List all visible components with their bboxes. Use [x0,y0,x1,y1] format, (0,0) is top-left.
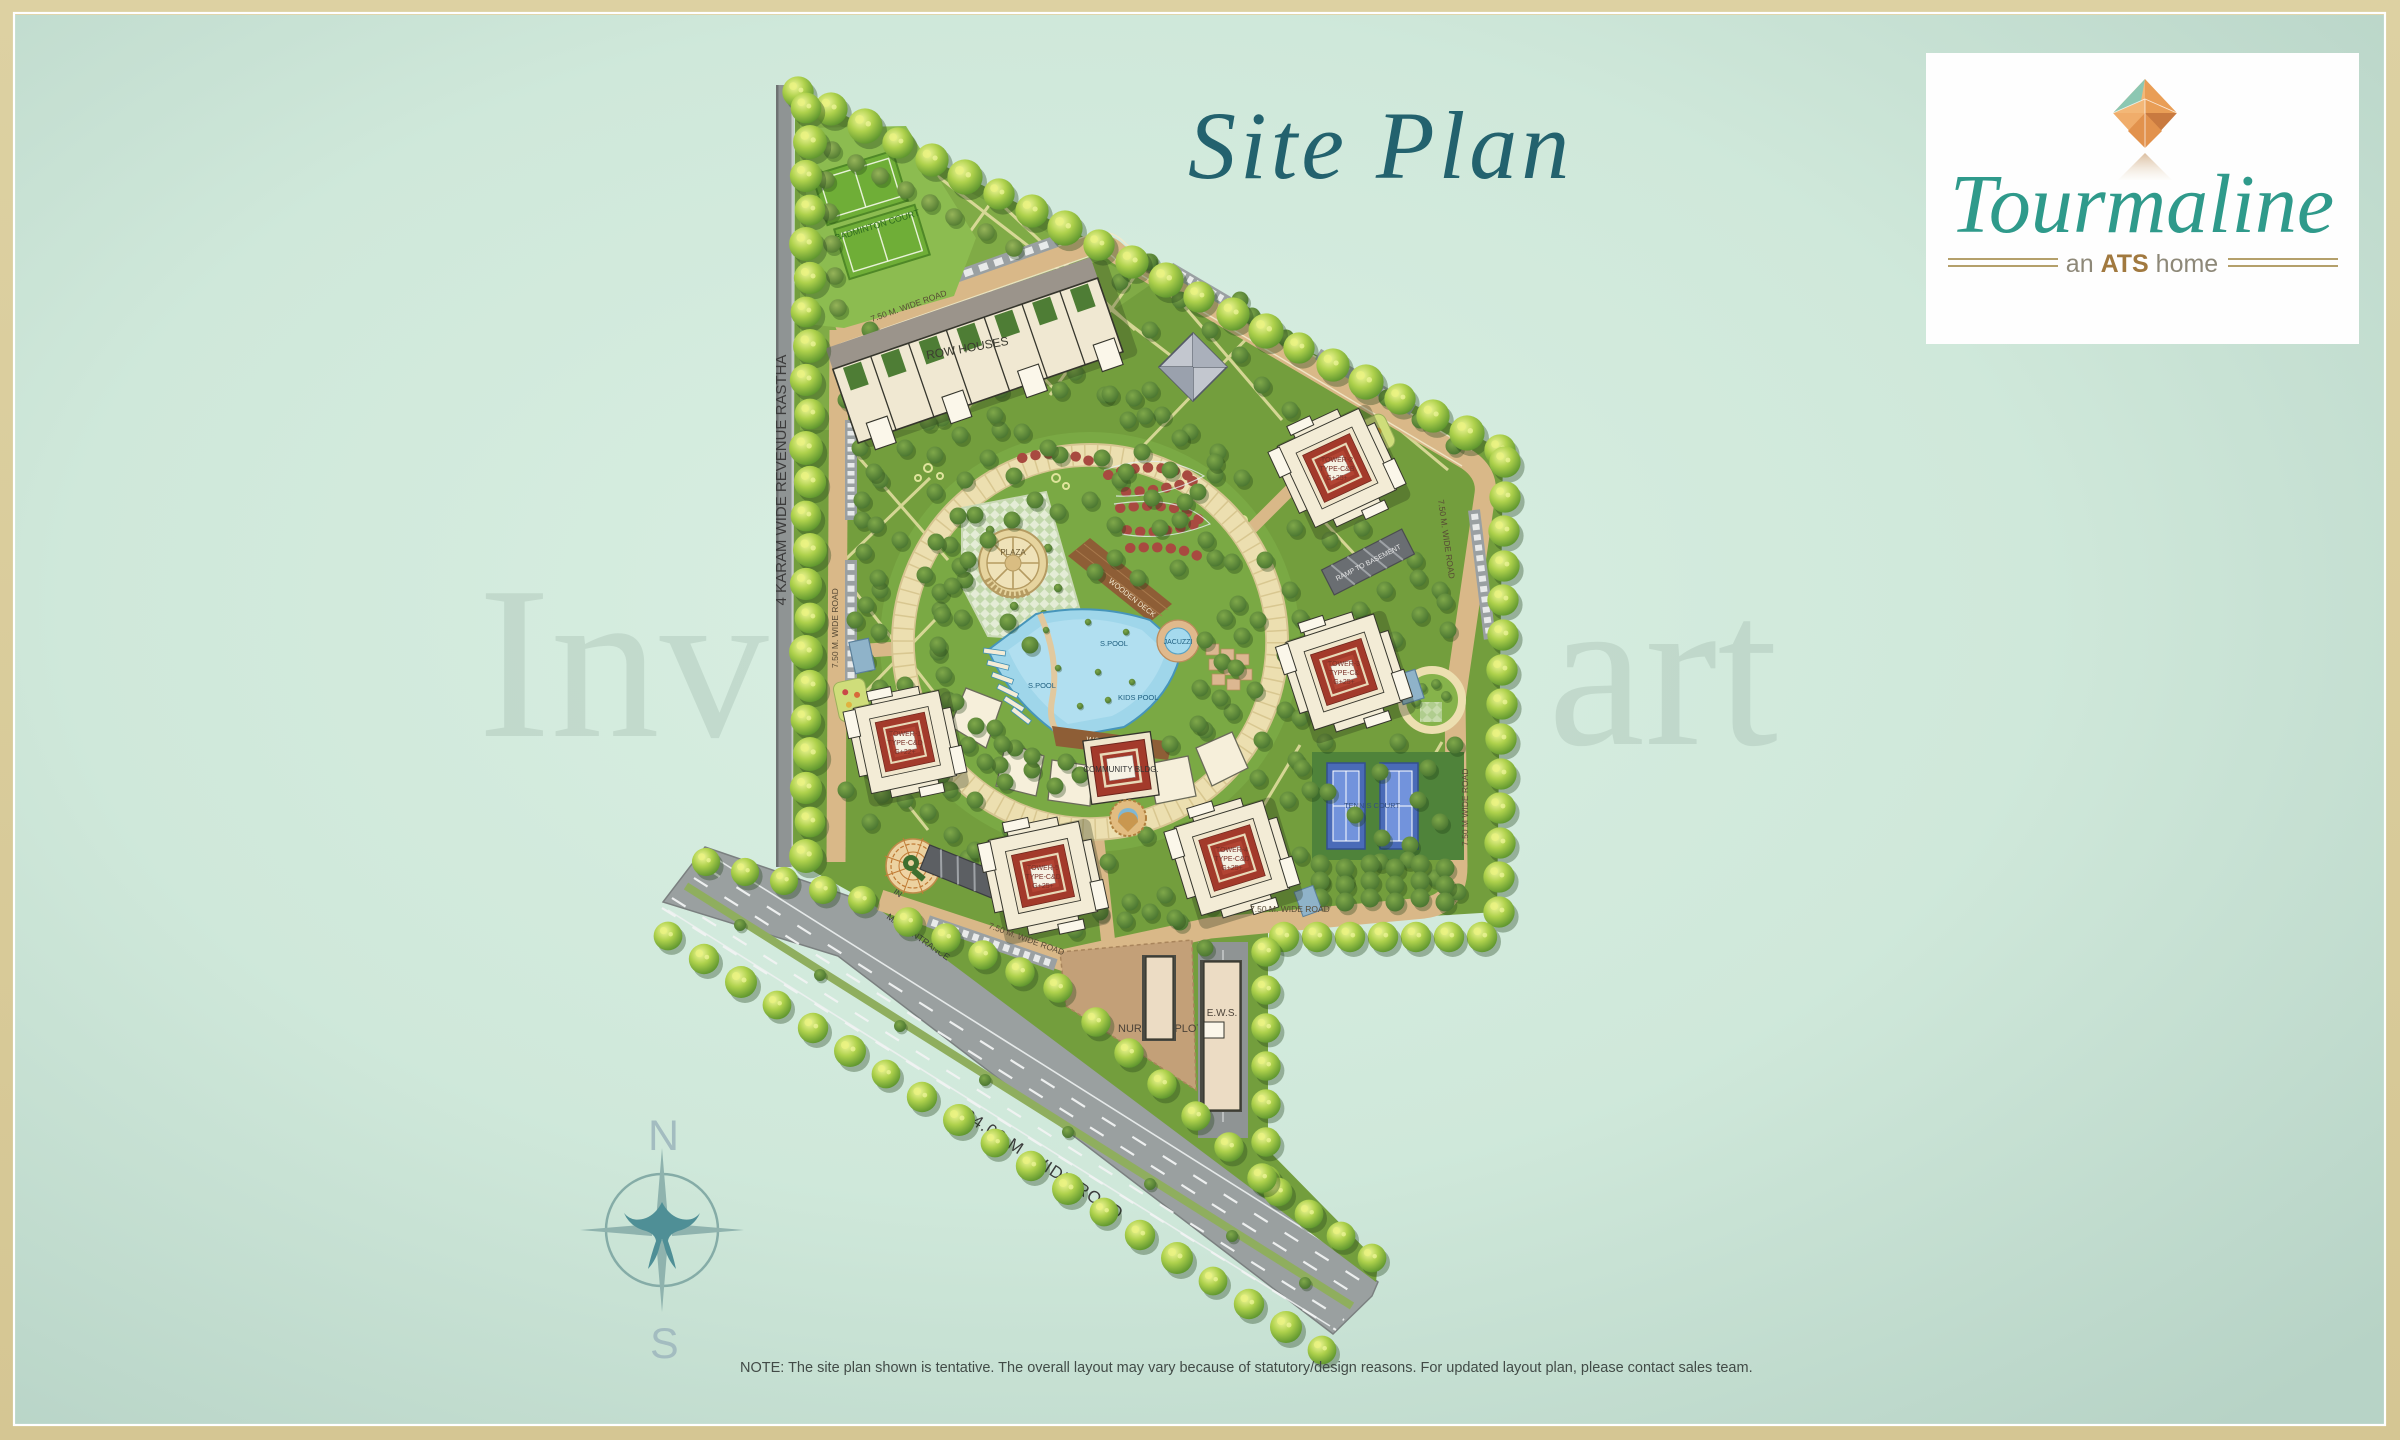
svg-text:TYPE-C&D: TYPE-C&D [887,740,922,747]
svg-text:TYPE-C&: TYPE-C& [1329,670,1360,677]
svg-text:G+25+: G+25+ [1032,883,1053,890]
svg-text:an ATS home: an ATS home [2066,250,2218,278]
svg-text:NOTE: The site plan shown is t: NOTE: The site plan shown is tentative. … [740,1360,1753,1376]
svg-text:N: N [648,1112,679,1160]
svg-text:KIDS POOL: KIDS POOL [1118,693,1158,702]
svg-text:JACUZZI: JACUZZI [1164,639,1193,646]
svg-text:COMMUNITY BLDG.: COMMUNITY BLDG. [1083,765,1158,774]
svg-text:G+25+: G+25+ [1221,865,1242,872]
svg-text:Site Plan: Site Plan [1188,92,1573,199]
svg-text:TOWER-4: TOWER-4 [1216,847,1248,854]
svg-text:7.50 M. WIDE ROAD: 7.50 M. WIDE ROAD [830,588,840,668]
svg-text:TYPE-C&B: TYPE-C&B [1319,466,1354,473]
svg-text:TOWER-5: TOWER-5 [1027,865,1059,872]
svg-text:Tourmaline: Tourmaline [1950,158,2334,251]
svg-text:PLAZA: PLAZA [1000,548,1026,557]
svg-text:Inv: Inv [478,543,769,784]
svg-text:G+25+: G+25+ [1333,679,1354,686]
svg-text:7.50 M WIDE ROAD: 7.50 M WIDE ROAD [1460,769,1470,846]
svg-text:TOWER-3: TOWER-3 [1328,661,1360,668]
svg-text:TOWER-2: TOWER-2 [1321,457,1353,464]
svg-text:TYPE-C&D: TYPE-C&D [1214,856,1249,863]
svg-text:TOWER-1: TOWER-1 [889,731,921,738]
svg-text:S.POOL: S.POOL [1100,639,1128,648]
svg-text:4 KARAM WIDE REVENUE RASTHA: 4 KARAM WIDE REVENUE RASTHA [773,355,790,606]
svg-text:7.50 M. WIDE ROAD: 7.50 M. WIDE ROAD [1250,904,1330,914]
svg-text:TYPE-C&D: TYPE-C&D [1025,874,1060,881]
svg-text:S: S [650,1320,679,1368]
svg-text:S.POOL: S.POOL [1028,681,1056,690]
svg-text:G+25+: G+25+ [1326,475,1347,482]
svg-text:art: art [1548,551,1778,792]
svg-text:G+22+: G+22+ [894,749,915,756]
svg-text:E.W.S.: E.W.S. [1207,1008,1238,1019]
